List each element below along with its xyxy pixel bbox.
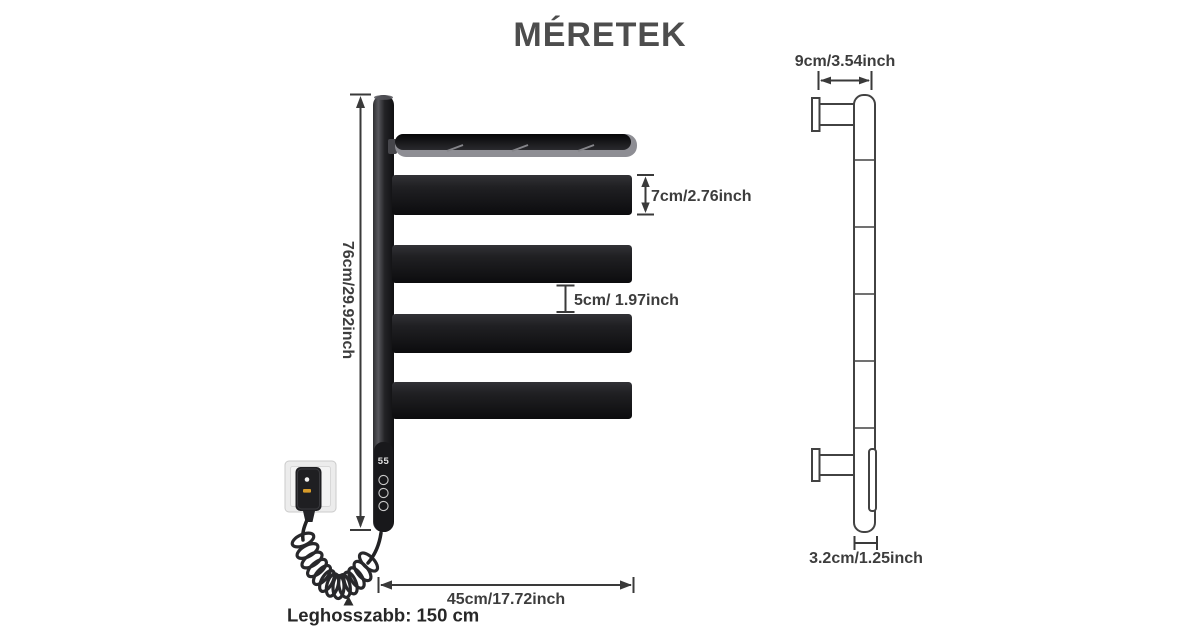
amber-indicator-icon (303, 489, 311, 493)
height-dimension: 76cm/29.92inch (339, 95, 371, 531)
plug-stem (303, 511, 315, 522)
arrow-down-icon (356, 516, 365, 528)
bar-gap-dimension: 5cm/ 1.97inch (557, 286, 679, 313)
thickness-dimension: 3.2cm/1.25inch (809, 536, 923, 567)
shelf-top-surface (395, 134, 631, 150)
thickness-dimension-label: 3.2cm/1.25inch (809, 550, 923, 567)
cable-lead-in (303, 520, 307, 540)
pole-cap (374, 95, 393, 100)
bottom-bracket-arm (819, 455, 856, 475)
depth-dimension-label: 9cm/3.54inch (795, 53, 896, 70)
product-dimension-diagram: MÉRETEK (0, 0, 1200, 630)
arrow-up-icon (356, 96, 365, 108)
side-profile-bar (854, 95, 876, 532)
cable-length-label: Leghosszabb: 150 cm (287, 605, 479, 626)
coiled-cable (290, 520, 381, 599)
arrow-left-icon (820, 77, 831, 85)
arrow-left-icon (380, 580, 392, 589)
top-bracket-arm (819, 104, 856, 125)
height-dimension-label: 76cm/29.92inch (339, 241, 356, 359)
led-indicator-icon (305, 477, 310, 482)
top-shelf (388, 134, 637, 157)
bar-height-dimension: 7cm/2.76inch (637, 175, 752, 215)
arrow-right-icon (859, 77, 870, 85)
side-view: 9cm/3.54inch 3.2cm/1.2 (795, 53, 923, 567)
top-bracket-flange (812, 98, 820, 131)
front-view: 76cm/29.92inch 55 (285, 95, 752, 626)
arrow-up-icon (641, 177, 649, 188)
control-strip-profile (869, 449, 876, 511)
wall-socket (285, 461, 336, 522)
towel-bar (392, 314, 632, 353)
pole: 55 (373, 95, 394, 532)
towel-bar (392, 175, 632, 215)
bar-gap-label: 5cm/ 1.97inch (574, 292, 679, 309)
diagram-svg: 76cm/29.92inch 55 (0, 0, 1200, 630)
arrow-down-icon (641, 203, 649, 214)
temperature-display: 55 (378, 456, 390, 467)
width-dimension: 45cm/17.72inch (379, 577, 634, 608)
bar-height-label: 7cm/2.76inch (651, 188, 752, 205)
depth-dimension: 9cm/3.54inch (795, 53, 896, 90)
towel-bar (392, 382, 632, 419)
arrow-right-icon (620, 580, 632, 589)
bottom-bracket-flange (812, 449, 820, 481)
towel-bar (392, 245, 632, 283)
